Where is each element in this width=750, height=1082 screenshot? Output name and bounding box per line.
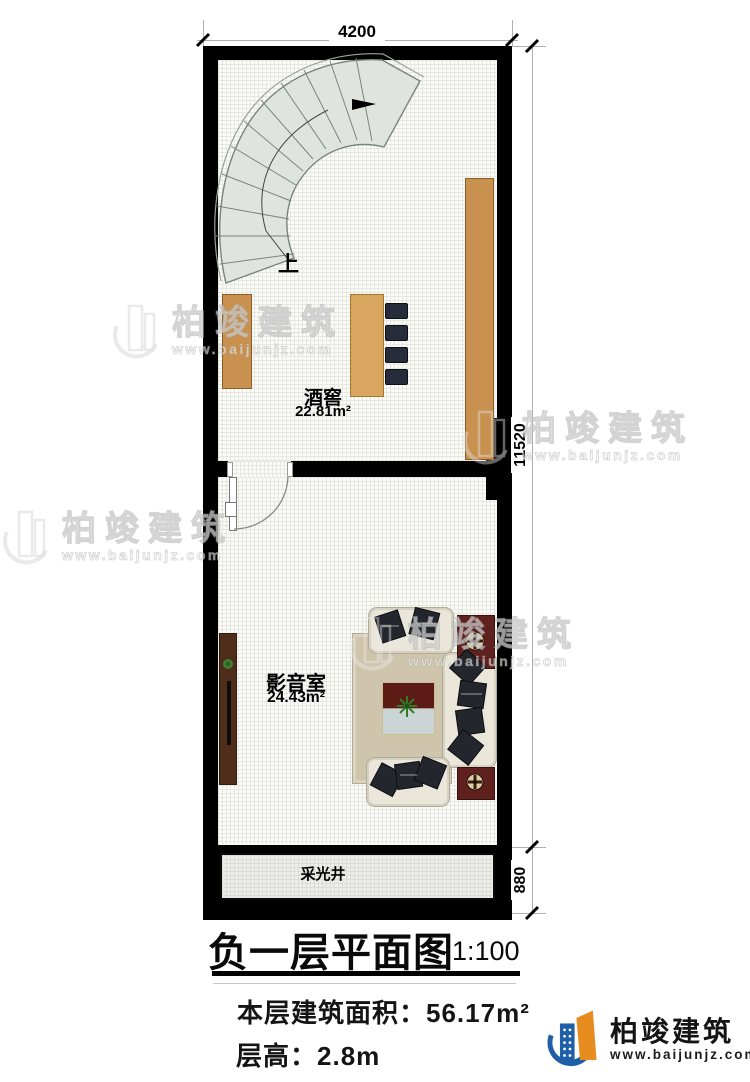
witness-line bbox=[512, 46, 546, 47]
witness-line bbox=[512, 20, 513, 46]
tasting-table bbox=[350, 294, 384, 397]
floor-area-label: 本层建筑面积： bbox=[237, 998, 426, 1028]
logo-url: www.baijunjz.com bbox=[610, 1047, 750, 1062]
red-mat-bottom bbox=[457, 767, 495, 800]
watermark-building-icon bbox=[112, 302, 162, 360]
room-name-light-well: 采光井 bbox=[283, 863, 363, 884]
door-jamb-left bbox=[227, 462, 233, 477]
logo-building-icon bbox=[538, 1003, 602, 1075]
title-underline bbox=[212, 971, 520, 976]
watermark-text: 柏竣建筑 www.baijunjz.com bbox=[522, 411, 694, 463]
watermark-brand: 柏竣建筑 bbox=[522, 411, 694, 447]
chair bbox=[385, 369, 408, 385]
watermark-building-icon bbox=[2, 508, 52, 566]
witness-line bbox=[512, 913, 546, 914]
coffee-table-mirror bbox=[382, 708, 435, 735]
logo-building-orange bbox=[576, 1011, 596, 1060]
floor-area-stat: 本层建筑面积：56.17m² bbox=[237, 993, 530, 1030]
witness-line bbox=[512, 847, 546, 848]
dimension-line-right bbox=[532, 46, 533, 913]
sofa-top bbox=[368, 607, 454, 654]
door-opening bbox=[228, 461, 291, 477]
chair bbox=[385, 347, 408, 363]
stairs-up-label: 上 bbox=[278, 248, 298, 278]
chair bbox=[385, 325, 408, 341]
wine-shelf-right bbox=[465, 178, 494, 460]
divider-line bbox=[213, 983, 516, 984]
sofa-bottom bbox=[366, 757, 450, 807]
drawing-scale: 1:100 bbox=[452, 936, 520, 967]
room-area-wine-cellar: 22.81m² bbox=[283, 403, 363, 420]
page-title: 负一层平面图 bbox=[208, 920, 454, 978]
floor-plan-page: 4200 11520 880 上 酒窖 22.81m² 影音室 24.43m² … bbox=[0, 0, 750, 1082]
floor-height-stat: 层高：2.8m bbox=[236, 1036, 380, 1073]
floor-area-value: 56.17m² bbox=[426, 998, 530, 1028]
chair bbox=[385, 303, 408, 319]
company-logo: 柏竣建筑 www.baijunjz.com bbox=[538, 1003, 750, 1075]
logo-building-blue bbox=[560, 1023, 575, 1061]
door-handle bbox=[225, 502, 237, 517]
dimension-right: 11520 bbox=[511, 417, 531, 473]
floor-height-value: 2.8m bbox=[317, 1041, 380, 1071]
red-mat-top bbox=[457, 615, 495, 669]
wine-cabinet-left bbox=[222, 294, 252, 389]
witness-line bbox=[203, 20, 204, 46]
coffee-table-top bbox=[382, 682, 435, 709]
logo-brand: 柏竣建筑 bbox=[610, 1017, 750, 1047]
door-jamb-right bbox=[287, 462, 293, 477]
tv-screen bbox=[227, 681, 231, 745]
sofa-right bbox=[442, 652, 497, 768]
watermark: 柏竣建筑 www.baijunjz.com bbox=[2, 508, 234, 566]
dimension-right-lightwell: 880 bbox=[511, 860, 531, 900]
room-area-media-room: 24.43m² bbox=[256, 689, 336, 707]
logo-text: 柏竣建筑 www.baijunjz.com bbox=[610, 1017, 750, 1062]
watermark-url: www.baijunjz.com bbox=[522, 447, 694, 463]
floor-height-label: 层高： bbox=[236, 1041, 317, 1071]
dimension-top: 4200 bbox=[329, 22, 385, 42]
